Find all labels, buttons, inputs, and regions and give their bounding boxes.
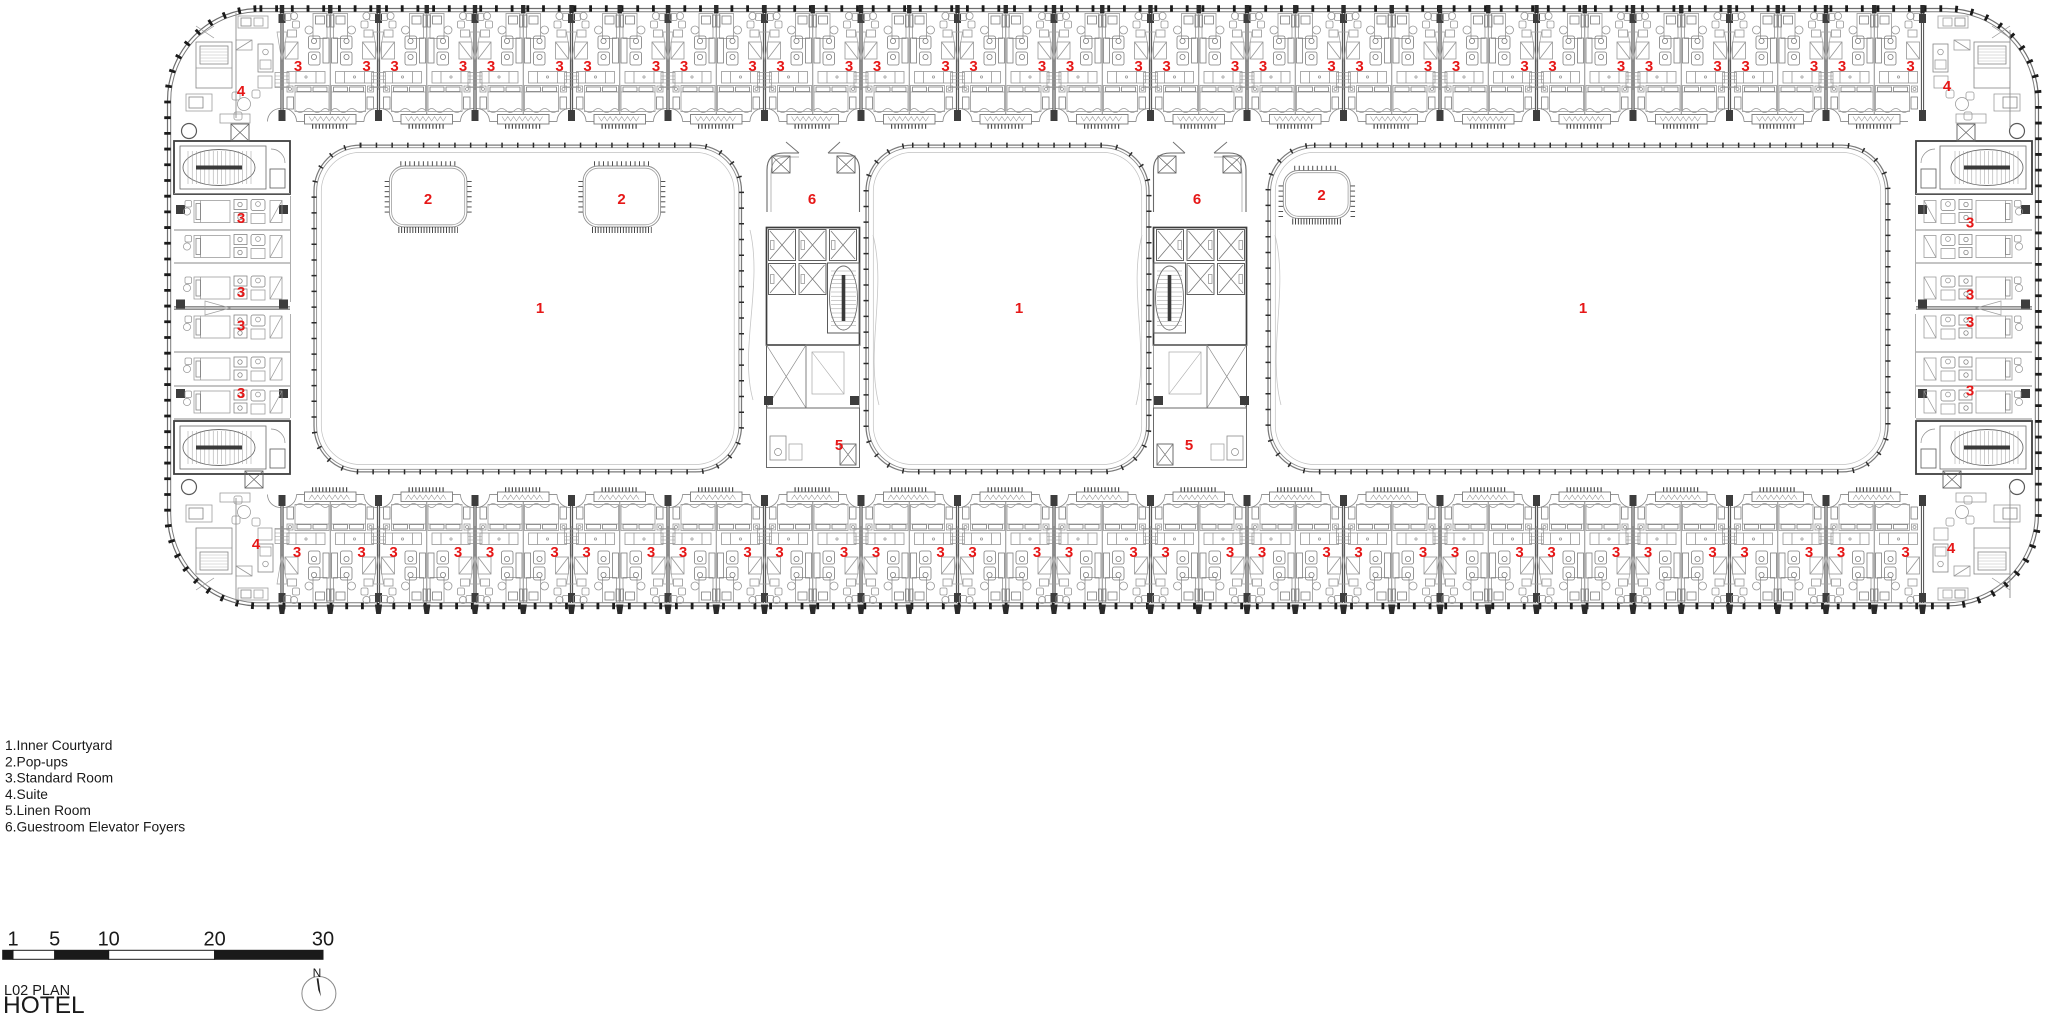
svg-text:3: 3 (1741, 58, 1749, 75)
svg-text:6: 6 (1193, 191, 1201, 208)
svg-text:3: 3 (1355, 58, 1363, 75)
svg-text:3: 3 (872, 544, 880, 561)
svg-text:3: 3 (1066, 58, 1074, 75)
svg-text:10: 10 (98, 929, 120, 951)
svg-text:20: 20 (203, 929, 225, 951)
svg-text:3: 3 (968, 544, 976, 561)
svg-text:3: 3 (1038, 58, 1046, 75)
svg-text:3: 3 (1520, 58, 1528, 75)
svg-text:2.Pop-ups: 2.Pop-ups (5, 754, 68, 769)
svg-text:3: 3 (873, 58, 881, 75)
svg-text:4.Suite: 4.Suite (5, 787, 48, 802)
svg-text:3: 3 (550, 544, 558, 561)
svg-text:30: 30 (312, 929, 334, 951)
svg-text:1.Inner Courtyard: 1.Inner Courtyard (5, 738, 112, 753)
svg-text:2: 2 (1317, 187, 1325, 204)
svg-text:3: 3 (582, 544, 590, 561)
svg-text:3: 3 (647, 544, 655, 561)
svg-text:3: 3 (1838, 58, 1846, 75)
svg-text:3: 3 (454, 544, 462, 561)
svg-text:3: 3 (294, 58, 302, 75)
svg-text:3: 3 (237, 210, 245, 227)
svg-text:3: 3 (1419, 544, 1427, 561)
svg-text:4: 4 (1943, 78, 1952, 95)
svg-text:5: 5 (49, 929, 60, 951)
svg-text:3: 3 (1644, 544, 1652, 561)
svg-text:4: 4 (252, 536, 261, 553)
svg-text:3: 3 (1258, 544, 1266, 561)
svg-text:3: 3 (1033, 544, 1041, 561)
svg-text:3: 3 (583, 58, 591, 75)
svg-text:3: 3 (1065, 544, 1073, 561)
svg-text:4: 4 (237, 83, 246, 100)
svg-text:3: 3 (390, 58, 398, 75)
svg-text:1: 1 (1579, 300, 1587, 317)
svg-text:3: 3 (1452, 58, 1460, 75)
svg-text:3: 3 (1906, 58, 1914, 75)
svg-text:3: 3 (941, 58, 949, 75)
svg-text:3: 3 (1966, 215, 1974, 232)
svg-text:3: 3 (969, 58, 977, 75)
svg-text:4: 4 (1947, 540, 1956, 557)
svg-text:3: 3 (555, 58, 563, 75)
svg-text:3: 3 (1322, 544, 1330, 561)
svg-text:3: 3 (1547, 544, 1555, 561)
svg-text:3: 3 (1451, 544, 1459, 561)
svg-text:3: 3 (1740, 544, 1748, 561)
svg-text:5: 5 (835, 437, 843, 454)
svg-text:3: 3 (748, 58, 756, 75)
svg-text:3: 3 (1966, 383, 1974, 400)
svg-text:3: 3 (362, 58, 370, 75)
svg-text:3: 3 (1617, 58, 1625, 75)
svg-text:3: 3 (293, 544, 301, 561)
svg-text:3: 3 (1837, 544, 1845, 561)
svg-text:3: 3 (1810, 58, 1818, 75)
svg-text:3: 3 (1708, 544, 1716, 561)
svg-text:3: 3 (680, 58, 688, 75)
svg-text:3: 3 (1713, 58, 1721, 75)
svg-text:3: 3 (237, 385, 245, 402)
svg-text:3: 3 (1162, 58, 1170, 75)
svg-text:3: 3 (1161, 544, 1169, 561)
svg-text:3.Standard Room: 3.Standard Room (5, 771, 113, 786)
svg-text:1: 1 (1015, 300, 1023, 317)
svg-text:3: 3 (1226, 544, 1234, 561)
svg-text:1: 1 (536, 300, 544, 317)
svg-text:3: 3 (652, 58, 660, 75)
svg-text:3: 3 (1129, 544, 1137, 561)
svg-text:3: 3 (840, 544, 848, 561)
svg-text:3: 3 (1612, 544, 1620, 561)
svg-text:3: 3 (1134, 58, 1142, 75)
svg-text:5.Linen Room: 5.Linen Room (5, 803, 91, 818)
svg-text:3: 3 (1354, 544, 1362, 561)
svg-text:3: 3 (1805, 544, 1813, 561)
svg-text:3: 3 (1327, 58, 1335, 75)
svg-text:3: 3 (487, 58, 495, 75)
svg-text:1: 1 (7, 929, 18, 951)
svg-text:N: N (313, 966, 322, 980)
svg-text:3: 3 (775, 544, 783, 561)
svg-text:3: 3 (1966, 287, 1974, 304)
svg-text:3: 3 (1548, 58, 1556, 75)
svg-text:3: 3 (389, 544, 397, 561)
svg-text:3: 3 (679, 544, 687, 561)
svg-text:6: 6 (808, 191, 816, 208)
svg-text:3: 3 (1901, 544, 1909, 561)
svg-text:3: 3 (1515, 544, 1523, 561)
svg-text:3: 3 (237, 318, 245, 335)
svg-text:3: 3 (776, 58, 784, 75)
svg-text:3: 3 (237, 284, 245, 301)
svg-text:3: 3 (845, 58, 853, 75)
svg-text:3: 3 (1231, 58, 1239, 75)
svg-text:3: 3 (743, 544, 751, 561)
svg-text:3: 3 (1966, 314, 1974, 331)
svg-text:3: 3 (486, 544, 494, 561)
svg-text:6.Guestroom Elevator Foyers: 6.Guestroom Elevator Foyers (5, 820, 185, 835)
svg-text:3: 3 (1424, 58, 1432, 75)
svg-text:3: 3 (459, 58, 467, 75)
svg-text:HOTEL: HOTEL (3, 992, 85, 1019)
svg-text:3: 3 (357, 544, 365, 561)
svg-text:3: 3 (1645, 58, 1653, 75)
svg-text:3: 3 (1259, 58, 1267, 75)
svg-text:3: 3 (936, 544, 944, 561)
svg-text:2: 2 (424, 191, 432, 208)
svg-text:5: 5 (1185, 437, 1193, 454)
svg-text:2: 2 (617, 191, 625, 208)
